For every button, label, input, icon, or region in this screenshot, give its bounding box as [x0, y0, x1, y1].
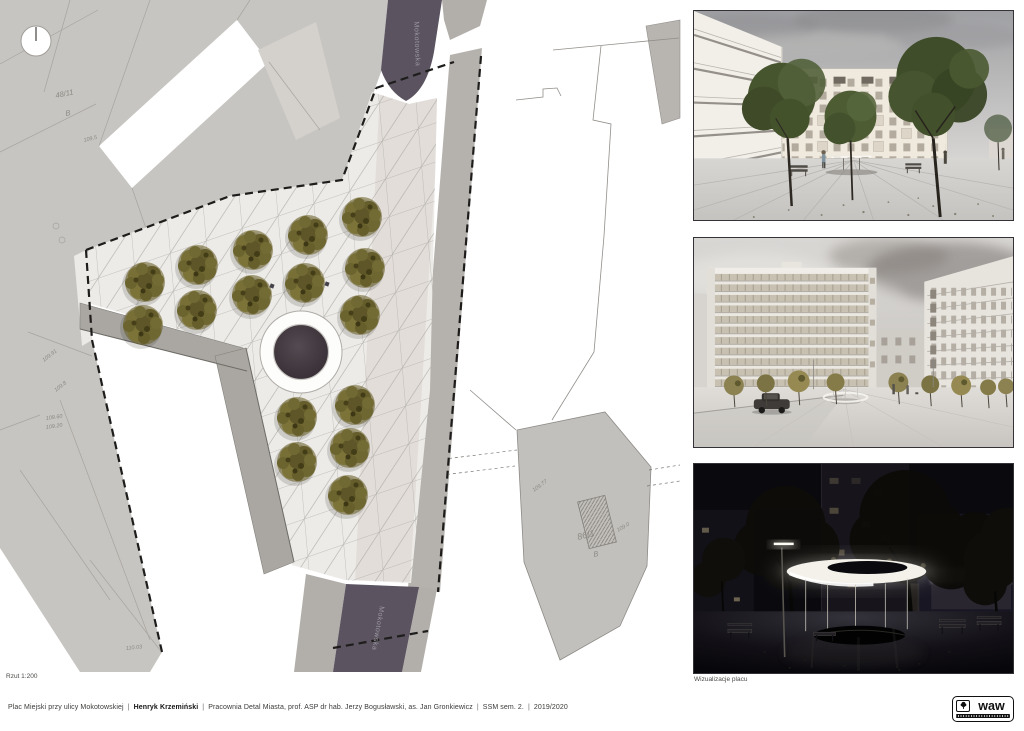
author-name: Henryk Krzemiński — [134, 704, 199, 711]
waw-logo: waw — [952, 696, 1014, 722]
slab-building — [707, 262, 876, 389]
render-building-elevation — [693, 237, 1014, 448]
plaza-ground — [694, 387, 1013, 447]
separator: | — [477, 704, 479, 711]
render-night-view — [693, 463, 1014, 674]
glowing-ring — [769, 550, 944, 594]
tree-icon — [956, 700, 970, 712]
site-plan: 48/11 B 109.5 109.91 109.8 109.60 109.20… — [0, 0, 682, 673]
fountain — [260, 311, 342, 393]
pavement — [694, 158, 1013, 220]
separator: | — [528, 704, 530, 711]
plan-scale-caption: Rzut 1:200 — [6, 673, 37, 680]
semester: SSM sem. 2. — [483, 704, 524, 711]
academic-year: 2019/2020 — [534, 704, 568, 711]
logo-wordmark: waw — [973, 700, 1010, 712]
presentation-board: 48/11 B 109.5 109.91 109.8 109.60 109.20… — [0, 0, 1024, 731]
tree-canopy — [984, 115, 1012, 143]
separator: | — [202, 704, 204, 711]
project-title: Plac Miejski przy ulicy Mokotowskiej — [8, 704, 124, 711]
separator: | — [128, 704, 130, 711]
logo-subtext-bar — [956, 714, 1010, 718]
studio-credits: Pracownia Detal Miasta, prof. ASP dr hab… — [208, 704, 473, 711]
render-day-street-view — [693, 10, 1014, 221]
title-bar: Plac Miejski przy ulicy Mokotowskiej|Hen… — [8, 704, 568, 711]
renders-caption: Wizualizacje placu — [694, 676, 747, 683]
north-indicator-icon — [21, 26, 51, 56]
left-low-building — [694, 294, 707, 390]
